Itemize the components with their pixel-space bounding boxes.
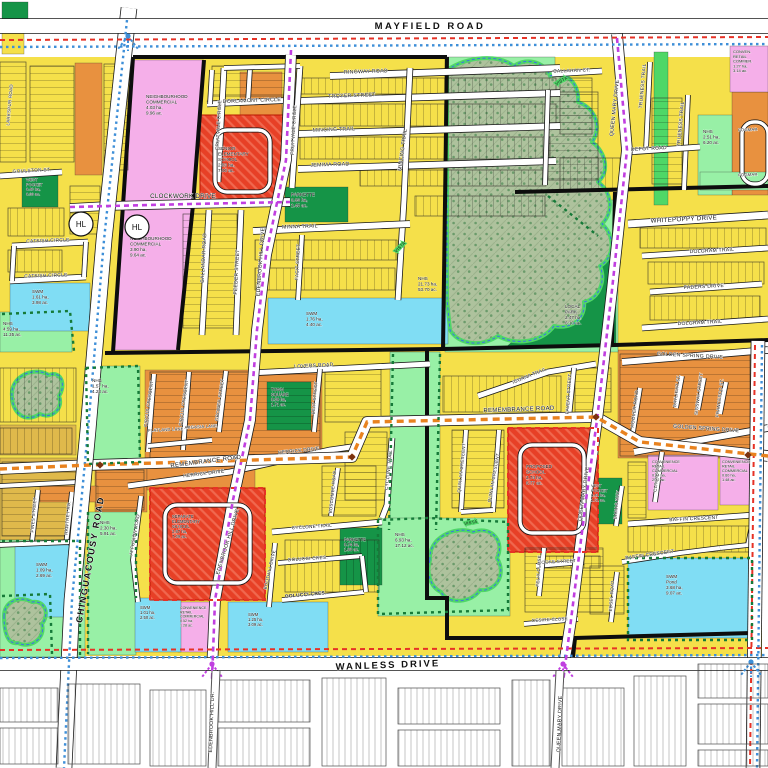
lot-strip <box>345 432 387 500</box>
street-label-mayfield-road: MAYFIELD ROAD <box>375 21 486 32</box>
lot-strip <box>648 262 764 284</box>
woodlot <box>428 530 500 601</box>
landuse-blue <box>268 298 448 344</box>
zoning-map-canvas: MAYFIELD ROADWANLESS DRIVECHINGUACOUSY R… <box>0 0 768 768</box>
lot-strip <box>548 92 598 180</box>
street-label-fogmar: FOGMAR <box>738 127 758 133</box>
street <box>461 510 493 512</box>
lot-strip <box>650 296 760 320</box>
street-label-minna-trail: MINNA TRAIL <box>282 223 318 230</box>
street-label-fogmar: FOGMAR <box>738 172 758 178</box>
subdivision-block <box>698 750 768 766</box>
subdivision-block <box>0 688 58 722</box>
subdivision-block <box>634 676 686 766</box>
lot-strip <box>360 170 546 186</box>
subdivision-block <box>512 680 550 766</box>
street <box>84 242 86 277</box>
street <box>12 246 14 281</box>
street <box>210 70 212 104</box>
lot-strip <box>0 62 26 162</box>
lot-strip <box>415 196 545 216</box>
street-label-clockwork-drive: CLOCKWORK DRIVE <box>150 193 216 200</box>
landuse-blue <box>228 602 328 652</box>
area-label-local: LOCALPARK2.47 ha,6.10 ac. <box>565 304 582 326</box>
lot-strip <box>0 368 76 422</box>
subdivision-block <box>218 680 310 722</box>
subdivision-block <box>322 678 386 766</box>
subdivision-block <box>68 684 140 764</box>
landuse-glight <box>390 352 440 530</box>
subdivision-block <box>698 704 768 744</box>
woodlot <box>4 599 46 645</box>
lot-strip <box>255 268 395 290</box>
landuse-orange <box>75 63 102 175</box>
subdivision-block <box>398 730 500 766</box>
subdivision-block <box>150 690 206 766</box>
zoning-map-page: MAYFIELD ROADWANLESS DRIVECHINGUACOUSY R… <box>0 0 768 768</box>
lot-strip <box>300 137 550 159</box>
landuse-blue <box>628 558 752 638</box>
lot-strip <box>8 208 64 236</box>
street <box>248 68 250 102</box>
subdivision-block <box>0 728 58 764</box>
hl-badge-text: HL <box>132 223 143 232</box>
hl-badge-text: HL <box>76 220 87 229</box>
lot-strip <box>30 66 74 162</box>
subdivision-block <box>218 728 310 766</box>
landuse-blue <box>10 283 90 331</box>
lot-strip <box>325 368 381 422</box>
lot-strip <box>640 228 766 248</box>
subdivision-block <box>398 688 500 724</box>
subdivision-block <box>562 688 624 766</box>
lot-strip <box>628 462 646 518</box>
lot-strip <box>300 104 556 126</box>
lot-strip <box>0 428 72 454</box>
lot-strip <box>255 240 397 260</box>
subdivision-block <box>698 664 768 698</box>
